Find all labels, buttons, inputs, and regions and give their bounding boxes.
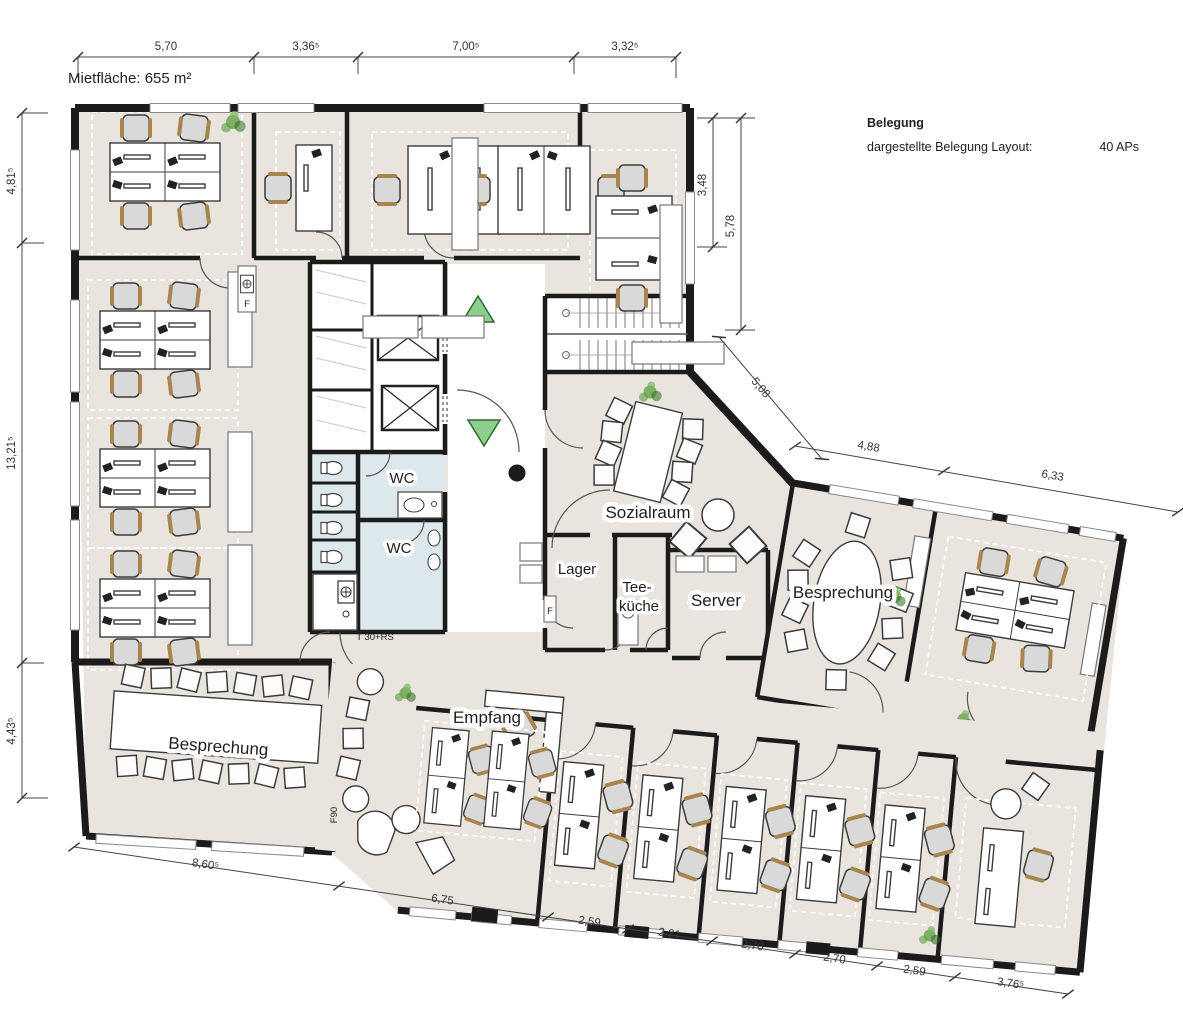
- room-label-wc-lower: WC: [387, 540, 412, 557]
- dim-bottom-4: 2,81: [657, 926, 681, 941]
- extinguisher-label-top: F: [244, 299, 250, 310]
- room-label-lager: Lager: [558, 561, 596, 578]
- column-dot: [509, 465, 526, 482]
- dim-left-2: 13,21⁵: [6, 436, 18, 470]
- room-label-sozialraum: Sozialraum: [605, 503, 690, 522]
- fire-door-label: T 30+RS: [356, 632, 394, 643]
- extinguisher-label-lager: F: [547, 606, 553, 617]
- sink-icon: [428, 554, 440, 570]
- dim-diag-2: 4,88: [856, 439, 880, 455]
- sink-counter: [398, 492, 442, 518]
- desk: [975, 828, 1024, 927]
- toilet-icon: [321, 522, 342, 535]
- dim-left-1: 4,81⁵: [6, 167, 18, 194]
- dim-bottom-5: 2,70: [740, 938, 764, 953]
- dim-bottom-1: 8,60⁵: [191, 857, 220, 873]
- floor-plan-drawing: Sozialraum Lager Tee- küche Server Bespr…: [0, 0, 1183, 1034]
- toilet-icon: [321, 462, 342, 475]
- toilet-icon: [321, 494, 342, 507]
- dimension-left: 4,81⁵ 13,21⁵ 4,43⁵: [6, 108, 48, 803]
- dim-diag-1: 5,08: [749, 376, 773, 401]
- fire-extinguisher-icon: [241, 275, 254, 293]
- room-label-server: Server: [691, 591, 741, 610]
- room-label-besprechung-right: Besprechung: [793, 583, 893, 602]
- dimension-top: 5,70 3,36⁵ 7,00⁵ 3,32⁵: [73, 41, 681, 78]
- room-label-empfang: Empfang: [453, 708, 521, 727]
- office-chair: [616, 165, 648, 191]
- waiting-chair: [343, 728, 363, 748]
- office-chair: [616, 285, 648, 311]
- dim-left-3: 4,43⁵: [6, 717, 18, 744]
- room-label-teekueche-1: Tee-: [622, 579, 651, 596]
- room-label-teekueche-2: küche: [619, 598, 659, 615]
- dimension-right: 3,48 5,78: [697, 113, 755, 335]
- fire-extinguisher-icon: [338, 581, 354, 603]
- room-label-wc-upper: WC: [390, 470, 415, 487]
- dim-top-4: 3,32⁵: [611, 41, 638, 53]
- dim-top-2: 3,36⁵: [292, 41, 319, 53]
- dim-diag-3: 6,33: [1040, 468, 1064, 484]
- sink-icon: [428, 530, 440, 546]
- dim-right-1: 3,48: [697, 174, 709, 196]
- dim-bottom-7: 2,59: [902, 963, 926, 978]
- toilet-icon: [321, 551, 342, 564]
- floor-plan-page: Mietfläche: 655 m² Belegung dargestellte…: [0, 0, 1183, 1034]
- dim-bottom-6: 2,70: [822, 951, 846, 966]
- dim-top-3: 7,00⁵: [452, 41, 479, 53]
- office-chair: [265, 172, 291, 204]
- waiting-chair: [346, 697, 370, 721]
- dim-top-1: 5,70: [155, 41, 177, 53]
- round-table: [702, 499, 734, 531]
- dim-right-2: 5,78: [725, 215, 737, 237]
- f90-label: F90: [329, 807, 340, 823]
- dim-bottom-8: 3,76⁵: [996, 976, 1025, 992]
- waiting-chair: [336, 756, 360, 780]
